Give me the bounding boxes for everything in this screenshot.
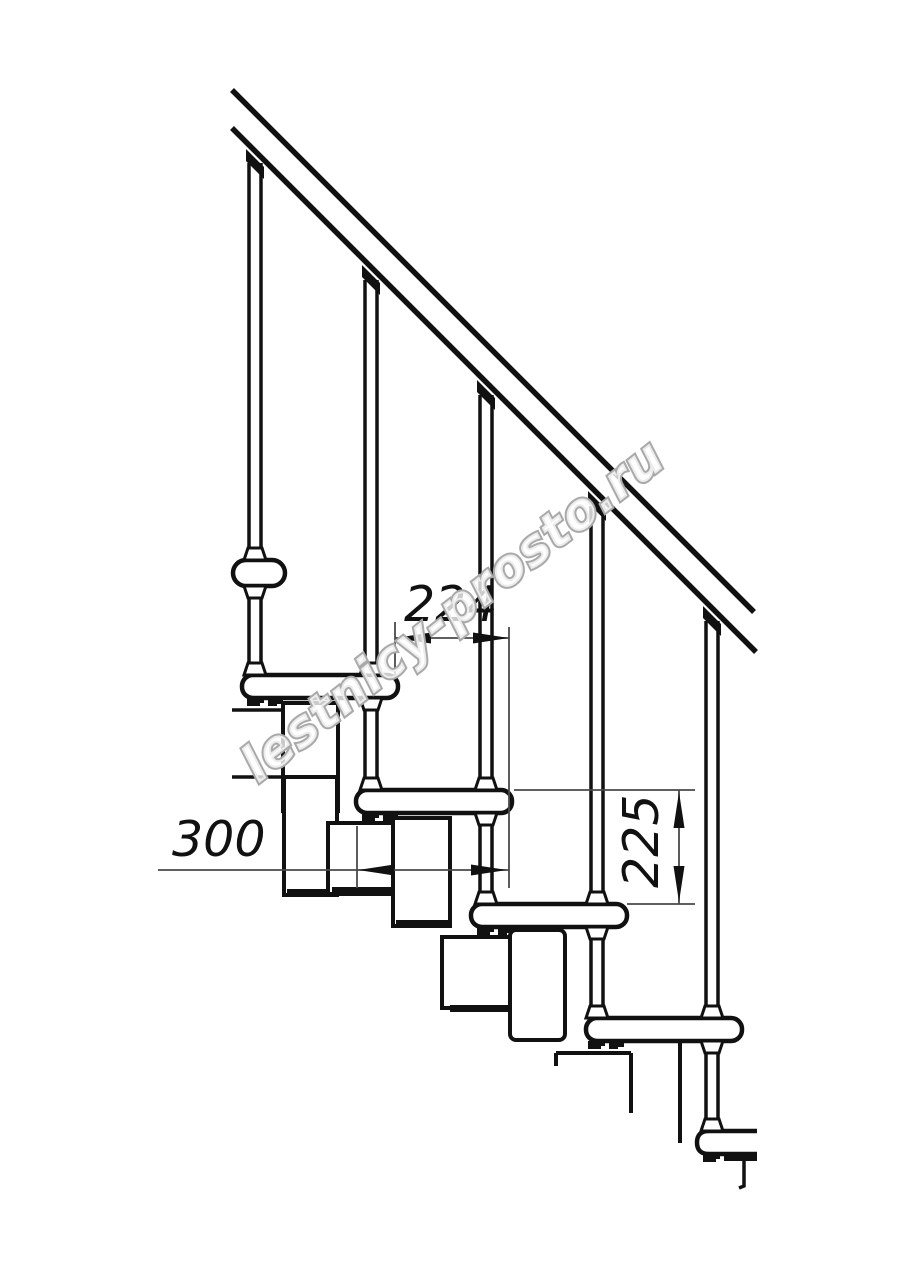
module-box [442,937,518,1008]
foot-flange [360,778,382,790]
foot-flange [244,548,266,560]
module-base-plate [450,1005,511,1012]
foot-flange [475,778,497,790]
module-box [393,818,450,926]
staircase-technical-drawing: 224 300 225 lestnicy-prosto.ru [0,0,914,1280]
foot-flange [701,1119,723,1131]
step-tread-4 [586,1018,742,1041]
step-end-view [233,560,285,586]
step-tread-3 [471,904,627,927]
foot-flange [244,663,266,675]
foot-flange [244,586,266,598]
foot-flange [701,1006,723,1018]
module-base-plate [332,887,398,894]
step-tread-2 [356,790,512,813]
module-base-plate [396,920,448,927]
foot-flange [586,892,608,904]
fitting [703,1154,757,1162]
drawing-canvas: 224 300 225 lestnicy-prosto.ru [0,0,914,1280]
foot-flange [475,892,497,904]
foot-flange [586,927,608,939]
module-box [510,930,565,1040]
dimension-225-label: 225 [613,794,670,888]
foot-flange [701,1041,723,1053]
dimension-300-label: 300 [172,811,266,868]
foot-flange [475,813,497,825]
step-tread-5-partial [697,1131,757,1154]
foot-flange [586,1006,608,1018]
